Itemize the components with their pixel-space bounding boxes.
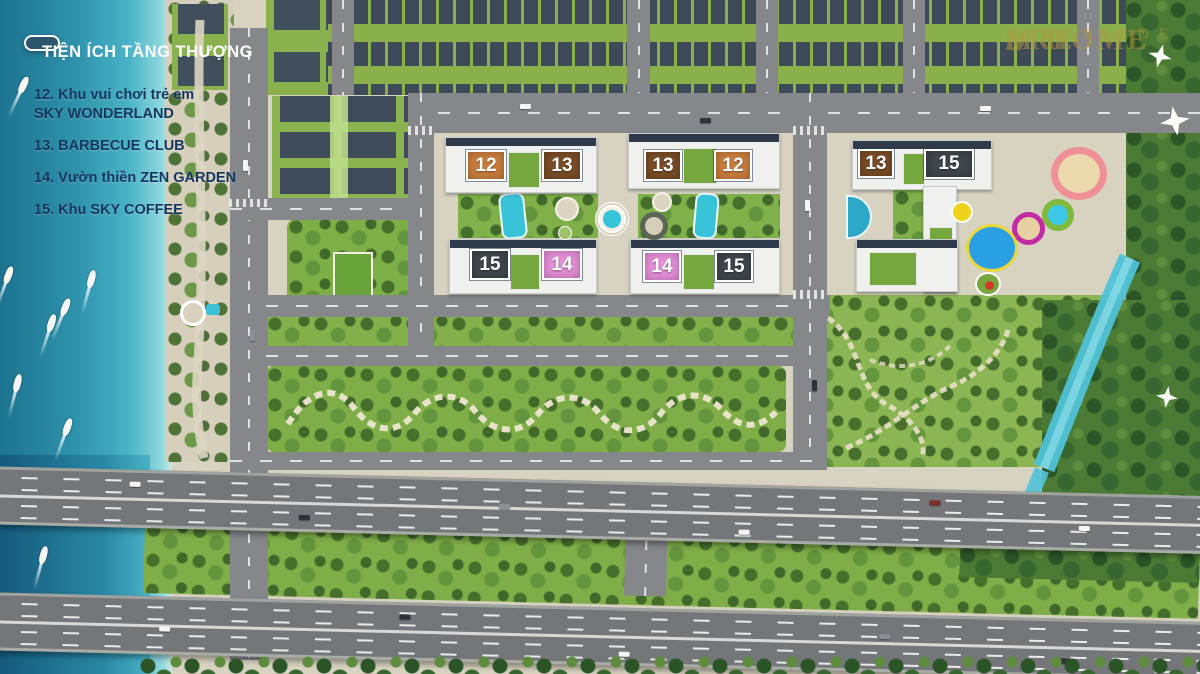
play-lawn-circle [975, 272, 1001, 296]
courtyard-garden [893, 189, 925, 241]
crosswalk [793, 126, 827, 135]
roof-garden [510, 254, 540, 290]
apartment-building [856, 239, 958, 292]
road-minor [756, 0, 778, 95]
legend-list: 12. Khu vui chơi trẻ emSKY WONDERLAND13.… [34, 86, 264, 233]
plaza-circle [555, 197, 579, 221]
car [700, 118, 711, 123]
road-minor [332, 0, 354, 95]
legend-title: TIỆN ÍCH TẦNG THƯỢNG [42, 43, 253, 62]
playground-yellow-circle [951, 201, 973, 223]
half-moon-pool [846, 195, 872, 239]
promenade-plaza-circle [180, 300, 206, 326]
legend-item: 15. Khu SKY COFFEE [34, 201, 264, 220]
legend-item: 12. Khu vui chơi trẻ emSKY WONDERLAND [34, 86, 264, 124]
roof-badge-13: 13 [542, 150, 582, 181]
roof-garden [903, 153, 925, 185]
roof-garden [683, 148, 717, 184]
legend-item-line: 13. BARBECUE CLUB [34, 137, 264, 156]
legend-item-line: 12. Khu vui chơi trẻ em [34, 86, 264, 105]
car [805, 200, 810, 211]
building-core [629, 134, 779, 142]
roof-garden [683, 254, 715, 290]
playground-ring [1012, 212, 1045, 245]
roof-badge-13: 13 [858, 149, 894, 178]
swimming-pool [498, 192, 529, 240]
forest-canal-east [1042, 300, 1200, 518]
fountain-plaza [595, 202, 629, 236]
legend-item: 13. BARBECUE CLUB [34, 137, 264, 156]
roof-badge-13: 13 [644, 150, 682, 181]
crosswalk [793, 290, 827, 299]
villa-cluster [272, 96, 410, 200]
watermark-sub: RIVERSIDE [1005, 26, 1179, 44]
townhouse-band [266, 0, 1130, 95]
roof-badge-15: 15 [715, 251, 753, 282]
building-core [446, 138, 596, 146]
villa-block [268, 0, 328, 95]
amphitheater-circle [640, 212, 668, 240]
road-minor [903, 0, 925, 95]
hedge-strip [266, 315, 828, 346]
roof-garden [869, 252, 917, 286]
roof-badge-12: 12 [714, 150, 752, 181]
crosswalk [408, 126, 434, 135]
plaza-circle [558, 226, 572, 240]
legend-item-line: 14. Vườn thiền ZEN GARDEN [34, 169, 264, 188]
road-park-north [266, 346, 796, 366]
road-east-avenue [793, 93, 827, 470]
road-park-south [230, 452, 820, 470]
roof-badge-14: 14 [643, 251, 681, 282]
roof-badge-14: 14 [542, 249, 582, 280]
legend-item: 14. Vườn thiền ZEN GARDEN [34, 169, 264, 188]
car [812, 380, 817, 391]
kids-pool [966, 224, 1018, 272]
road-minor [627, 0, 650, 95]
playground-sand-circle [1051, 147, 1107, 200]
building-core [450, 240, 596, 248]
play-equipment [985, 281, 994, 290]
building-core [857, 240, 957, 248]
promenade-pond [206, 304, 220, 315]
legend-item-line: SKY WONDERLAND [34, 105, 264, 124]
roof-badge-12: 12 [466, 150, 506, 181]
legend-title-box: TIỆN ÍCH TẦNG THƯỢNG [24, 35, 60, 51]
masterplan-canvas: 12 13 13 12 15 14 14 15 13 15 TIỆN ÍCH T… [0, 0, 1200, 674]
roof-badge-15: 15 [470, 249, 510, 280]
building-core [631, 240, 779, 248]
car [520, 104, 531, 109]
car [250, 330, 255, 341]
courtyard-garden [458, 194, 598, 238]
swimming-pool [692, 192, 720, 240]
plaza-circle [652, 192, 672, 212]
road-cluster-south [266, 295, 830, 317]
roof-garden [508, 152, 540, 188]
roof-badge-15: 15 [924, 149, 974, 179]
roadside-tree-row [140, 656, 1200, 674]
building-core [853, 141, 991, 149]
splash-pad-circle [1042, 199, 1074, 231]
linear-park [266, 366, 786, 452]
legend-item-line: 15. Khu SKY COFFEE [34, 201, 264, 220]
car [980, 106, 991, 111]
